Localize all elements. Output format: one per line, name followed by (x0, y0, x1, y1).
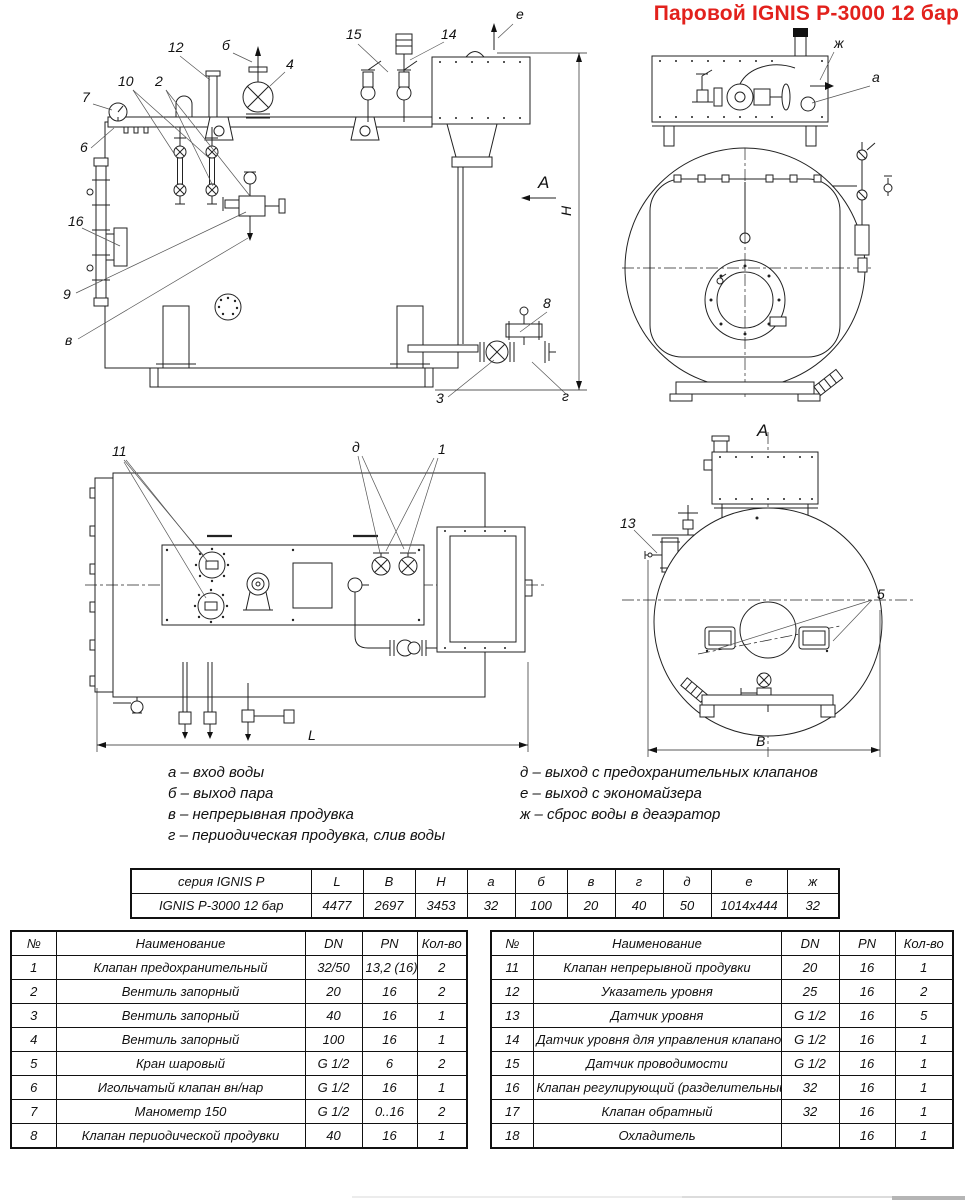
header-cell: DN (305, 931, 362, 956)
cell: 1 (895, 1076, 953, 1100)
section-a-label: А (537, 173, 549, 192)
table-row: №НаименованиеDNPNКол-во (11, 931, 467, 956)
cell: 16 (839, 1124, 895, 1149)
callout-9: 9 (63, 286, 71, 302)
cell: 100 (305, 1028, 362, 1052)
table-row: 7Манометр 150G 1/20..162 (11, 1100, 467, 1124)
callout-7: 7 (82, 89, 91, 105)
callout-13: 13 (620, 515, 636, 531)
callout-a: а (872, 69, 880, 85)
cell: 20 (781, 956, 839, 980)
table-row: 18Охладитель161 (491, 1124, 953, 1149)
bottom-edge-line (682, 1196, 892, 1198)
callout-1: 1 (438, 441, 446, 457)
legend-item: б – выход пара (168, 783, 445, 804)
callout-10: 10 (118, 73, 134, 89)
cell: Датчик проводимости (533, 1052, 781, 1076)
legend-right: д – выход с предохранительных клапанов е… (520, 762, 818, 825)
legend-item: ж – сброс воды в деаэратор (520, 804, 818, 825)
cell: 18 (491, 1124, 533, 1149)
header-cell: в (567, 869, 615, 894)
cell: G 1/2 (305, 1076, 362, 1100)
callout-14: 14 (441, 26, 457, 42)
cell: G 1/2 (781, 1052, 839, 1076)
cell: 16 (362, 980, 417, 1004)
cell: 1 (417, 1028, 467, 1052)
table-row: 14Датчик уровня для управления клапаномG… (491, 1028, 953, 1052)
cell: 13,2 (16) (362, 956, 417, 980)
cell: Вентиль запорный (56, 1004, 305, 1028)
callout-b: б (222, 37, 231, 53)
table-row: 17Клапан обратный32161 (491, 1100, 953, 1124)
cell: 20 (567, 894, 615, 919)
cell: Вентиль запорный (56, 980, 305, 1004)
view-a-label: А (756, 421, 768, 440)
cell: G 1/2 (305, 1100, 362, 1124)
header-cell: № (491, 931, 533, 956)
cell: 16 (839, 1100, 895, 1124)
cell: 16 (362, 1124, 417, 1149)
cell: 40 (305, 1004, 362, 1028)
parts-table-left: №НаименованиеDNPNКол-во1Клапан предохран… (10, 930, 468, 1149)
cell: 2 (11, 980, 56, 1004)
table-row: IGNIS P-3000 12 бар447726973453321002040… (131, 894, 839, 919)
callout-11: 11 (112, 443, 127, 459)
cell: Вентиль запорный (56, 1028, 305, 1052)
header-cell: PN (362, 931, 417, 956)
callout-v: в (65, 332, 72, 348)
cell: 2697 (363, 894, 415, 919)
legend-item: е – выход с экономайзера (520, 783, 818, 804)
cell: 40 (305, 1124, 362, 1149)
table-row: 16Клапан регулирующий (разделительный)32… (491, 1076, 953, 1100)
callout-2: 2 (154, 73, 163, 89)
cell: 4 (11, 1028, 56, 1052)
cell: 1 (417, 1004, 467, 1028)
header-cell: L (311, 869, 363, 894)
table-row: 6Игольчатый клапан вн/нарG 1/2161 (11, 1076, 467, 1100)
dimension-h-label: H (558, 205, 574, 216)
header-cell: № (11, 931, 56, 956)
callout-d: д (352, 439, 360, 455)
cell: 20 (305, 980, 362, 1004)
table-row: 5Кран шаровыйG 1/262 (11, 1052, 467, 1076)
dimensions-table: серия IGNIS PLBHабвгдежIGNIS P-3000 12 б… (130, 868, 840, 919)
callout-12: 12 (168, 39, 184, 55)
cell: 16 (839, 1052, 895, 1076)
cell: 32 (781, 1076, 839, 1100)
callout-8: 8 (543, 295, 551, 311)
legend-left: а – вход воды б – выход пара в – непреры… (168, 762, 445, 846)
cell: 1 (895, 1100, 953, 1124)
table-row: серия IGNIS PLBHабвгдеж (131, 869, 839, 894)
table-row: 15Датчик проводимостиG 1/2161 (491, 1052, 953, 1076)
header-cell: д (663, 869, 711, 894)
cell: 5 (11, 1052, 56, 1076)
callout-3: 3 (436, 390, 444, 406)
header-cell: PN (839, 931, 895, 956)
cell: 16 (839, 980, 895, 1004)
header-cell: DN (781, 931, 839, 956)
table-row: 2Вентиль запорный20162 (11, 980, 467, 1004)
header-cell: ж (787, 869, 839, 894)
cell: 6 (11, 1076, 56, 1100)
cell: 2 (417, 1100, 467, 1124)
header-cell: B (363, 869, 415, 894)
cell: 11 (491, 956, 533, 980)
cell: G 1/2 (305, 1052, 362, 1076)
cell: 16 (839, 1004, 895, 1028)
cell: 16 (362, 1004, 417, 1028)
cell: 40 (615, 894, 663, 919)
cell: Охладитель (533, 1124, 781, 1149)
callout-zh: ж (833, 35, 845, 51)
cell: Датчик уровня (533, 1004, 781, 1028)
header-cell: Наименование (56, 931, 305, 956)
cell: Клапан обратный (533, 1100, 781, 1124)
cell: 7 (11, 1100, 56, 1124)
legend-item: в – непрерывная продувка (168, 804, 445, 825)
bottom-edge-line (352, 1196, 682, 1198)
cell: 6 (362, 1052, 417, 1076)
callout-16: 16 (68, 213, 84, 229)
cell: 4477 (311, 894, 363, 919)
cell: 2 (895, 980, 953, 1004)
front-view-drawing: ж а (622, 28, 892, 401)
dimension-b-label: В (756, 733, 765, 749)
cell: 2 (417, 1052, 467, 1076)
parts-table-right: №НаименованиеDNPNКол-во11Клапан непрерыв… (490, 930, 954, 1149)
legend-item: а – вход воды (168, 762, 445, 783)
callout-15: 15 (346, 26, 362, 42)
header-cell: г (615, 869, 663, 894)
table-row: 8Клапан периодической продувки40161 (11, 1124, 467, 1149)
cell: 1014x444 (711, 894, 787, 919)
cell: 14 (491, 1028, 533, 1052)
cell: 17 (491, 1100, 533, 1124)
table-row: 12Указатель уровня25162 (491, 980, 953, 1004)
table-row: №НаименованиеDNPNКол-во (491, 931, 953, 956)
drawing-sheet: Паровой IGNIS P-3000 12 бар (0, 0, 965, 1200)
cell: 16 (362, 1028, 417, 1052)
cell: 13 (491, 1004, 533, 1028)
cell: 1 (895, 1052, 953, 1076)
callout-e: е (516, 6, 524, 22)
cell: Игольчатый клапан вн/нар (56, 1076, 305, 1100)
cell: Клапан непрерывной продувки (533, 956, 781, 980)
header-cell: Кол-во (895, 931, 953, 956)
cell: 50 (663, 894, 711, 919)
header-cell: б (515, 869, 567, 894)
cell: Клапан предохранительный (56, 956, 305, 980)
cell: 1 (895, 956, 953, 980)
cell: 32 (781, 1100, 839, 1124)
table-row: 4Вентиль запорный100161 (11, 1028, 467, 1052)
cell: 2 (417, 980, 467, 1004)
cell: 16 (839, 1028, 895, 1052)
cell: 0..16 (362, 1100, 417, 1124)
header-cell: е (711, 869, 787, 894)
cell: 1 (895, 1028, 953, 1052)
header-cell: а (467, 869, 515, 894)
callout-4: 4 (286, 56, 294, 72)
callout-g: г (562, 388, 569, 404)
legend-item: г – периодическая продувка, слив воды (168, 825, 445, 846)
cell (781, 1124, 839, 1149)
cell: 16 (362, 1076, 417, 1100)
header-cell: Наименование (533, 931, 781, 956)
cell: 5 (895, 1004, 953, 1028)
side-view-drawing: 7 6 10 12 2 б 4 15 14 е 16 9 в 8 3 г А H (63, 6, 587, 406)
cell: 12 (491, 980, 533, 1004)
cell: 16 (839, 956, 895, 980)
cell: G 1/2 (781, 1004, 839, 1028)
cell: 1 (417, 1124, 467, 1149)
cell: Датчик уровня для управления клапаном (533, 1028, 781, 1052)
table-row: 1Клапан предохранительный32/5013,2 (16)2 (11, 956, 467, 980)
cell: 16 (839, 1076, 895, 1100)
cell: 15 (491, 1052, 533, 1076)
cell: 3453 (415, 894, 467, 919)
cell: 16 (491, 1076, 533, 1100)
cell: Указатель уровня (533, 980, 781, 1004)
top-view-drawing: 11 д 1 L (85, 439, 545, 752)
cell: 32/50 (305, 956, 362, 980)
table-row: 13Датчик уровняG 1/2165 (491, 1004, 953, 1028)
cell: 100 (515, 894, 567, 919)
cell: Клапан регулирующий (разделительный) (533, 1076, 781, 1100)
table-row: 11Клапан непрерывной продувки20161 (491, 956, 953, 980)
cell: 3 (11, 1004, 56, 1028)
cell: 1 (417, 1076, 467, 1100)
cell: 32 (787, 894, 839, 919)
table-row: 3Вентиль запорный40161 (11, 1004, 467, 1028)
cell: IGNIS P-3000 12 бар (131, 894, 311, 919)
cell: 1 (11, 956, 56, 980)
dimension-l-label: L (308, 727, 316, 743)
cell: 8 (11, 1124, 56, 1149)
callout-6: 6 (80, 139, 88, 155)
header-cell: серия IGNIS P (131, 869, 311, 894)
header-cell: Кол-во (417, 931, 467, 956)
legend-item: д – выход с предохранительных клапанов (520, 762, 818, 783)
cell: Кран шаровый (56, 1052, 305, 1076)
bottom-edge-line (892, 1196, 965, 1200)
cell: Клапан периодической продувки (56, 1124, 305, 1149)
header-cell: H (415, 869, 467, 894)
rear-view-drawing: А 13 5 В (620, 421, 915, 757)
cell: Манометр 150 (56, 1100, 305, 1124)
callout-5: 5 (877, 586, 885, 602)
cell: 32 (467, 894, 515, 919)
cell: 1 (895, 1124, 953, 1149)
cell: G 1/2 (781, 1028, 839, 1052)
boiler-technical-drawing: 7 6 10 12 2 б 4 15 14 е 16 9 в 8 3 г А H (0, 0, 965, 762)
cell: 2 (417, 956, 467, 980)
cell: 25 (781, 980, 839, 1004)
